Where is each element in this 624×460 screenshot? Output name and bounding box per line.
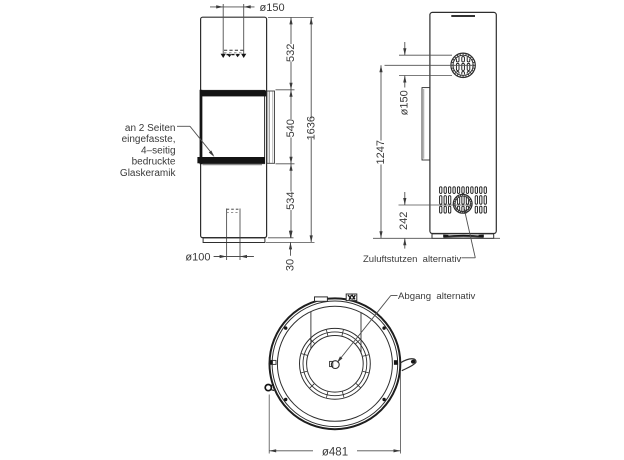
svg-text:bedruckte: bedruckte (132, 157, 176, 168)
svg-text:ø150: ø150 (399, 90, 411, 115)
svg-text:1636: 1636 (305, 116, 317, 140)
svg-text:534: 534 (285, 192, 297, 210)
svg-text:ø481: ø481 (322, 446, 348, 458)
svg-text:Glaskeramik: Glaskeramik (120, 168, 177, 179)
svg-text:an 2 Seiten: an 2 Seiten (125, 123, 176, 134)
svg-text:242: 242 (398, 212, 410, 230)
svg-text:ø100: ø100 (185, 251, 210, 263)
svg-text:Zuluftstutzen alternativ: Zuluftstutzen alternativ (363, 254, 461, 265)
svg-text:eingefasste,: eingefasste, (122, 134, 176, 145)
svg-text:540: 540 (285, 119, 297, 137)
svg-text:30: 30 (285, 259, 297, 271)
svg-text:532: 532 (285, 44, 297, 62)
svg-text:Abgang alternativ: Abgang alternativ (398, 291, 476, 302)
svg-text:ø150: ø150 (260, 2, 285, 14)
svg-text:4–seitig: 4–seitig (141, 145, 175, 156)
svg-text:1247: 1247 (375, 140, 387, 164)
